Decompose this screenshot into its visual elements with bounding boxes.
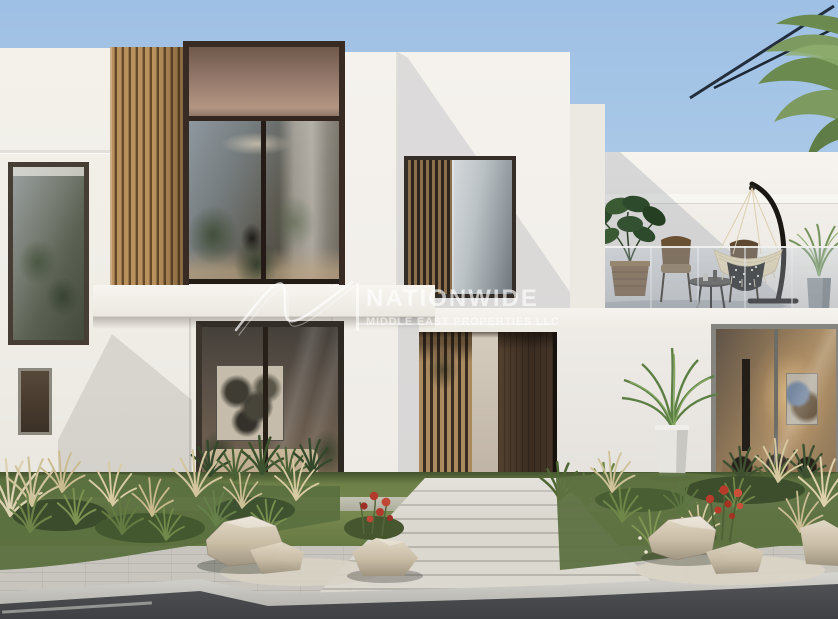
watermark-brand: NATIONWIDE xyxy=(366,285,539,313)
watermark-tagline: MIDDLE EAST PROPERTIES LLC xyxy=(366,316,560,328)
front-garden xyxy=(0,420,838,619)
red-flowers-left xyxy=(344,492,404,540)
sliding-door-mullion xyxy=(261,121,266,284)
villa-exterior-render: NATIONWIDE MIDDLE EAST PROPERTIES LLC xyxy=(0,0,838,619)
facade-seam xyxy=(396,52,398,292)
window-glass xyxy=(189,121,339,284)
palm-fronds xyxy=(758,15,838,162)
watermark: NATIONWIDE MIDDLE EAST PROPERTIES LLC xyxy=(232,272,572,338)
window-transom-blind xyxy=(189,47,339,121)
palm-fronds xyxy=(622,348,718,427)
wood-slat-panel xyxy=(110,47,184,292)
watermark-logo-swoosh-icon xyxy=(232,274,354,336)
upper-window-left xyxy=(183,41,345,302)
upper-window-far-left xyxy=(8,162,89,345)
facade-groove xyxy=(0,150,111,154)
watermark-rule xyxy=(356,323,554,325)
